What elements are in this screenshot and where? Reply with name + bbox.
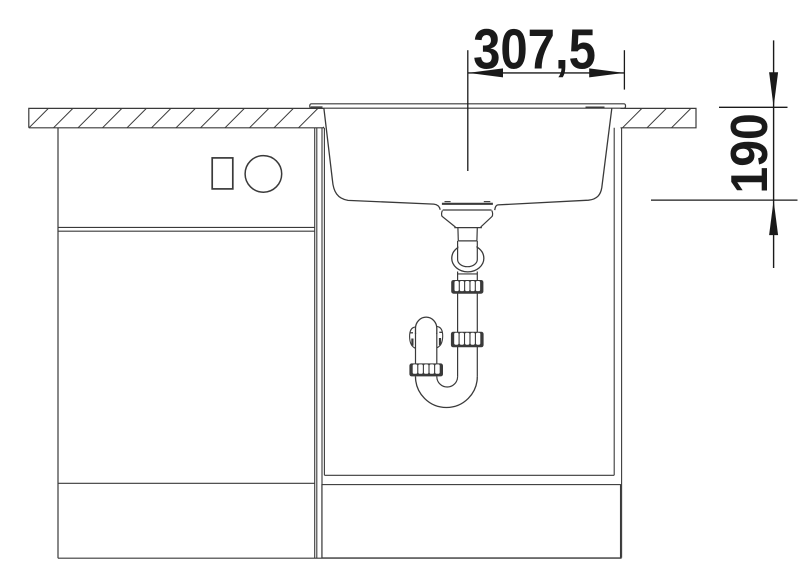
- svg-text:190: 190: [720, 113, 778, 193]
- svg-text:307,5: 307,5: [473, 18, 596, 81]
